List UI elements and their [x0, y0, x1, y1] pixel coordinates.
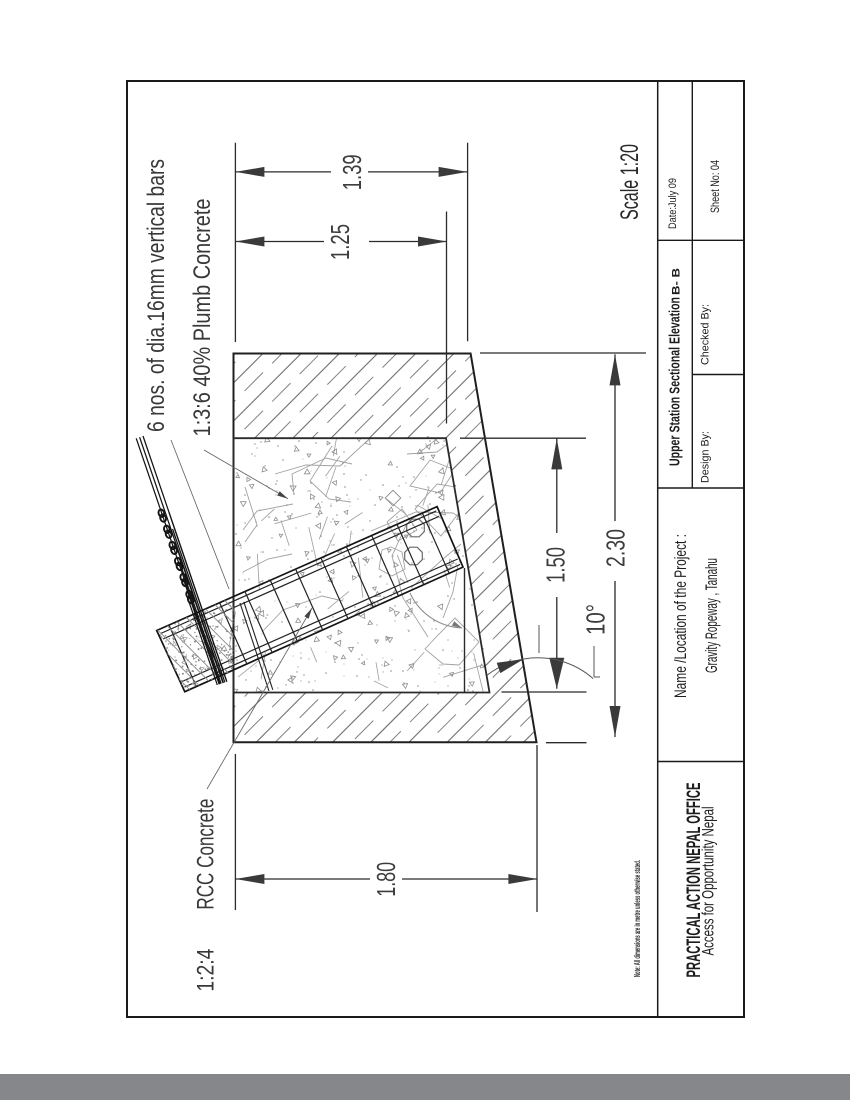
svg-text:Gravity Ropeway , Tanahu: Gravity Ropeway , Tanahu	[702, 558, 721, 673]
svg-text:1.50: 1.50	[543, 547, 571, 583]
svg-text:Upper Station Sectional Elevat: Upper Station Sectional Elevation	[668, 297, 684, 466]
svg-text:2.30: 2.30	[603, 529, 631, 567]
svg-text:Name /Location of the Project: Name /Location of the Project :	[671, 534, 690, 698]
svg-text:B- B: B- B	[671, 268, 683, 295]
svg-text:Checked By:: Checked By:	[700, 304, 712, 365]
svg-text:10°: 10°	[582, 604, 610, 635]
svg-text:RCC Concrete: RCC Concrete	[193, 799, 220, 910]
svg-text:1.39: 1.39	[339, 154, 367, 190]
svg-text:Scale 1:20: Scale 1:20	[616, 144, 644, 220]
svg-text:6 nos. of dia.16mm vertical ba: 6 nos. of dia.16mm vertical bars	[143, 159, 170, 432]
svg-text:1.80: 1.80	[373, 862, 401, 897]
svg-text:Sheet No: 04: Sheet No: 04	[708, 160, 722, 213]
svg-text:Design By:: Design By:	[700, 431, 712, 483]
svg-text:1:3:6 40% Plumb Concrete: 1:3:6 40% Plumb Concrete	[189, 199, 216, 437]
svg-text:Access for Opportunity Nepal: Access for Opportunity Nepal	[699, 807, 718, 956]
svg-text:Note: All dimensions are in me: Note: All dimensions are in metre unless…	[632, 860, 642, 977]
svg-text:1:2:4: 1:2:4	[193, 949, 220, 992]
svg-text:Date:July 09: Date:July 09	[667, 178, 679, 229]
svg-text:1.25: 1.25	[327, 224, 355, 260]
